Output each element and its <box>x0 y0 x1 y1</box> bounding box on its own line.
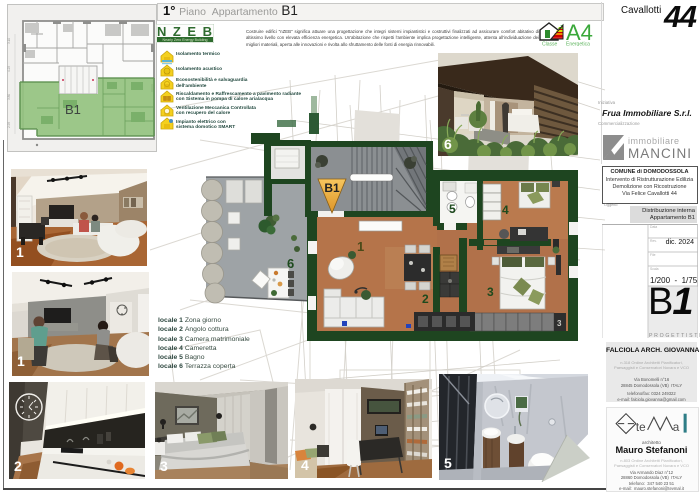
svg-text:2.95: 2.95 <box>7 122 11 128</box>
svg-text:B1: B1 <box>65 102 81 117</box>
svg-text:Nearly Zero Energy Building: Nearly Zero Energy Building <box>163 38 208 42</box>
svg-text:5: 5 <box>449 202 456 216</box>
svg-text:File: File <box>650 253 656 257</box>
svg-text:a: a <box>673 421 680 434</box>
svg-text:3.10: 3.10 <box>7 38 11 44</box>
svg-text:B1: B1 <box>324 181 340 195</box>
svg-text:2: 2 <box>422 292 429 306</box>
svg-text:Energetica: Energetica <box>566 42 590 47</box>
svg-text:Scala: Scala <box>650 267 659 271</box>
svg-text:3.80: 3.80 <box>7 94 11 100</box>
svg-text:Data: Data <box>650 225 657 229</box>
svg-text:te: te <box>636 421 646 434</box>
svg-text:6: 6 <box>287 256 294 271</box>
svg-text:4.25: 4.25 <box>7 66 11 72</box>
svg-text:1: 1 <box>357 239 364 254</box>
svg-text:MANCINI: MANCINI <box>628 146 692 161</box>
svg-text:immobiliare: immobiliare <box>628 136 680 146</box>
svg-text:4: 4 <box>502 203 509 217</box>
svg-text:Classe: Classe <box>542 42 558 47</box>
svg-text:3: 3 <box>557 319 562 328</box>
svg-text:3: 3 <box>487 285 494 299</box>
